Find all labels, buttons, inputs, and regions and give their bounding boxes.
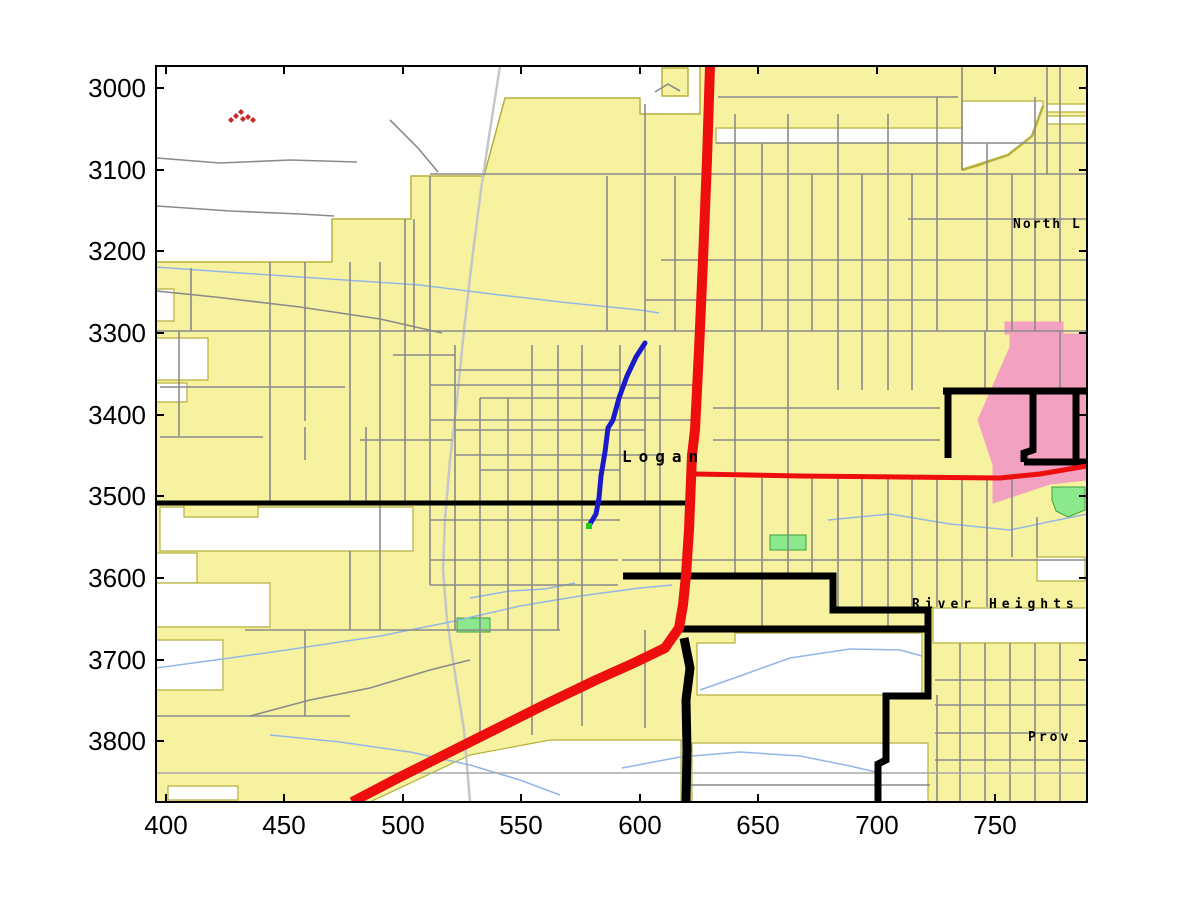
x-tick-label: 450 (262, 810, 305, 840)
district-pink-polygon (1005, 322, 1063, 334)
y-tick-label: 3600 (88, 563, 146, 593)
white-hole-polygon (156, 383, 187, 402)
red-diamond-marker (233, 113, 239, 119)
white-hole-polygon (1047, 116, 1087, 124)
white-hole-polygon (156, 640, 223, 690)
place-label: North L (1013, 217, 1082, 232)
x-tick-label: 600 (618, 810, 661, 840)
x-tick-label: 750 (973, 810, 1016, 840)
map-canvas: LoganNorth LRiver HeightsProv (156, 66, 1087, 802)
y-tick-label: 3000 (88, 73, 146, 103)
y-tick-label: 3100 (88, 155, 146, 185)
x-tick-label: 650 (736, 810, 779, 840)
white-hole-polygon (156, 289, 174, 321)
major-road (684, 638, 690, 802)
place-label: Prov (1028, 730, 1071, 745)
y-tick-label: 3500 (88, 481, 146, 511)
y-tick-label: 3700 (88, 645, 146, 675)
red-diamond-marker (228, 117, 234, 123)
x-tick-label: 500 (381, 810, 424, 840)
urban-patch-layer (184, 505, 258, 517)
y-tick-label: 3200 (88, 236, 146, 266)
minor-road (157, 206, 334, 216)
white-hole-polygon (156, 338, 208, 380)
white-hole-polygon (933, 608, 1087, 643)
urban-patch-polygon (184, 505, 258, 517)
x-tick-label: 700 (855, 810, 898, 840)
y-tick-label: 3800 (88, 726, 146, 756)
place-label: Logan (622, 447, 705, 466)
white-hole-polygon (1047, 104, 1087, 112)
red-marker-layer (228, 109, 256, 123)
red-diamond-marker (250, 117, 256, 123)
white-hole-polygon (168, 786, 238, 800)
y-tick-label: 3400 (88, 400, 146, 430)
route-end-dot (586, 523, 592, 529)
place-label: River Heights (912, 597, 1079, 612)
x-tick-label: 550 (499, 810, 542, 840)
minor-road (390, 120, 438, 172)
x-tick-label: 400 (144, 810, 187, 840)
matlab-figure-window: LoganNorth LRiver HeightsProv 4004505005… (0, 0, 1200, 901)
y-tick-label: 3300 (88, 318, 146, 348)
white-hole-polygon (156, 583, 270, 627)
map-plot: LoganNorth LRiver HeightsProv 4004505005… (0, 0, 1200, 901)
red-diamond-marker (238, 109, 244, 115)
urban-area-polygon (662, 68, 688, 96)
minor-road (157, 158, 357, 163)
white-hole-polygon (716, 128, 962, 143)
